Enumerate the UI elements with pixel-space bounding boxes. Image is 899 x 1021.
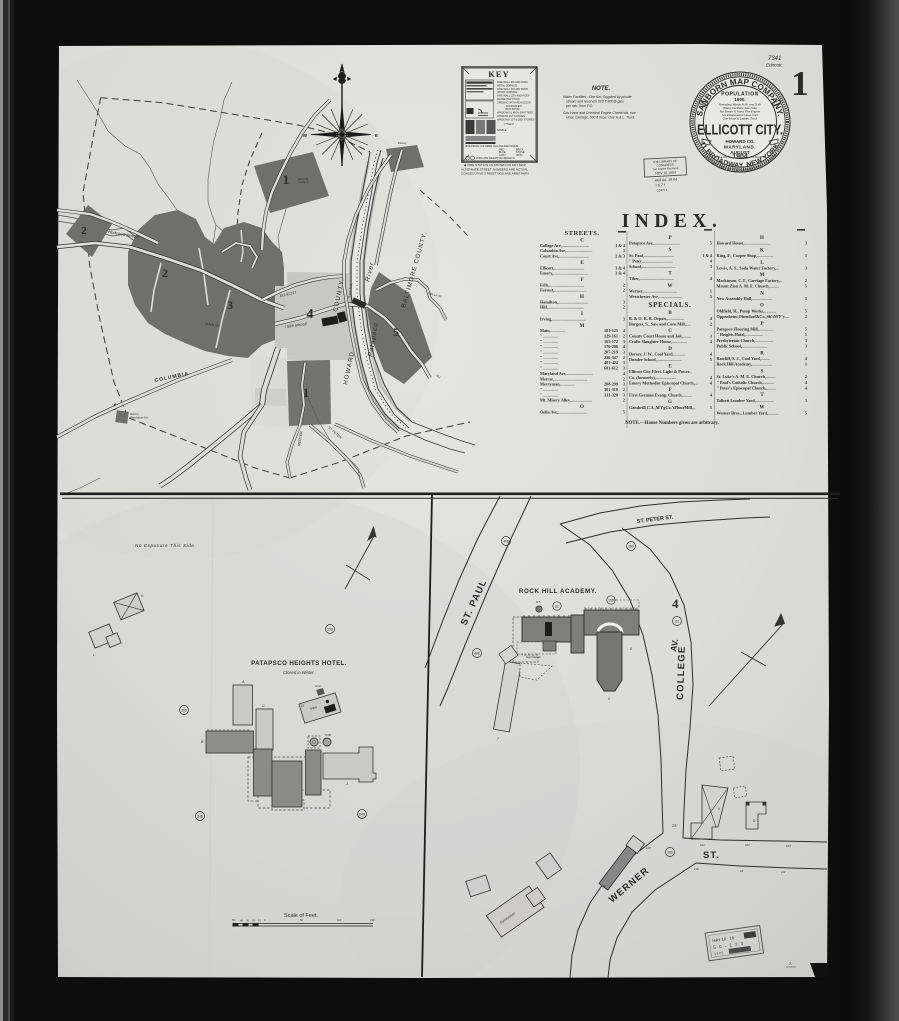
- svg-text:Rock Hill Academy,............: Rock Hill Academy,...................: [717, 362, 772, 367]
- svg-text:6: 6: [608, 697, 610, 701]
- svg-text:Presbyterian Church,..........: Presbyterian Church,.................: [717, 338, 774, 343]
- svg-text:3: 3: [805, 398, 807, 403]
- svg-text:601-612: 601-612: [604, 366, 618, 371]
- svg-text:3: 3: [623, 392, 625, 397]
- svg-text:J.: J.: [345, 782, 349, 786]
- svg-text:3: 3: [623, 248, 625, 253]
- svg-text:Oldfield, H., Pump Works,.....: Oldfield, H., Pump Works,...........: [717, 308, 776, 313]
- svg-text:Ellicott City Elect. Light & P: Ellicott City Elect. Light & Power..: [629, 369, 691, 374]
- svg-text:3: 3: [805, 344, 807, 349]
- svg-text:Oppenheim,Obendorf&Co.,Sh'tM'F: Oppenheim,Obendorf&Co.,Sh'tM'F'y....: [717, 314, 789, 319]
- svg-text:1: 1: [805, 362, 807, 367]
- svg-text:L.: L.: [93, 653, 96, 657]
- svg-text:408: 408: [503, 540, 509, 544]
- svg-text:5: 5: [710, 357, 712, 362]
- svg-text:D.: D.: [301, 704, 305, 708]
- svg-text:Fells,........................: Fells,.................................: [540, 282, 584, 287]
- svg-text:COPY 1.: COPY 1.: [656, 188, 668, 193]
- svg-text:No Exposure This Side.: No Exposure This Side.: [135, 543, 196, 548]
- svg-text:150: 150: [608, 599, 614, 603]
- svg-text:2: 2: [805, 374, 807, 379]
- svg-text:Maryland Ave,.................: Maryland Ave,.........................: [540, 371, 593, 376]
- svg-text:Irving,.......................: Irving,................................: [540, 316, 586, 321]
- svg-text:1904: 1904: [732, 154, 748, 161]
- svg-text:M: M: [580, 324, 585, 329]
- svg-text:3: 3: [805, 241, 807, 246]
- svg-text:" ..............: " ..............: [540, 334, 558, 339]
- svg-text:Howard House,.................: Howard House,.........................: [717, 241, 771, 246]
- svg-text:◆ FIRE STATION AS SHOWN ON KEY: ◆ FIRE STATION AS SHOWN ON KEY MAP.: [464, 163, 526, 167]
- svg-text:176-206: 176-206: [604, 344, 618, 349]
- svg-text:129-161: 129-161: [604, 334, 618, 339]
- svg-text:3: 3: [805, 266, 807, 271]
- svg-text:" ..............: " ..............: [540, 360, 558, 365]
- svg-text:Gas Hand and Chemical Engine C: Gas Hand and Chemical Engine Chemicals, …: [563, 111, 636, 115]
- svg-text:263: 263: [181, 709, 187, 713]
- svg-text:401-424: 401-424: [604, 360, 619, 365]
- svg-text:Mercer,.......................: Mercer,................................: [540, 376, 587, 381]
- svg-text:WINDOWS 1ST & 2ND STORIES: WINDOWS 1ST & 2ND STORIES: [497, 118, 535, 121]
- svg-text:5: 5: [710, 294, 712, 299]
- svg-text:1 & 4: 1 & 4: [702, 253, 713, 258]
- svg-text:128: 128: [646, 846, 651, 850]
- svg-text:Dundee School,................: Dundee School,........................: [629, 357, 682, 362]
- svg-text:Lewis, A. S., Soda Water Facto: Lewis, A. S., Soda Water Factory,...: [717, 266, 780, 271]
- svg-text:King, F., Cooper Shop,........: King, F., Cooper Shop,...............: [717, 253, 773, 258]
- svg-text:226-347: 226-347: [604, 355, 618, 360]
- svg-text:Patapsco Flouring Mill,.......: Patapsco Flouring Mill,..............: [717, 327, 774, 332]
- svg-text:College Ave,..................: College Ave,..........................: [540, 243, 589, 248]
- svg-text:COLLEGE: COLLEGE: [675, 645, 688, 700]
- svg-text:W.T.: W.T.: [536, 601, 541, 604]
- svg-text:Emory,........................: Emory,.................................: [540, 271, 588, 276]
- svg-text:2: 2: [623, 355, 625, 360]
- svg-text:Academy: Academy: [298, 180, 310, 184]
- svg-text:Court Ave,....................: Court Ave,............................: [540, 254, 589, 259]
- svg-text:103: 103: [786, 844, 791, 848]
- svg-text:100: 100: [337, 918, 342, 922]
- svg-text:2: 2: [805, 314, 807, 319]
- svg-text:3: 3: [227, 298, 233, 312]
- svg-text:5: 5: [710, 405, 712, 410]
- svg-text:Columbia Ave,.................: Columbia Ave,.........................: [540, 248, 592, 253]
- svg-text:230: 230: [327, 628, 333, 632]
- svg-text:CONSECUTIVE STREET NOS ARE ARB: CONSECUTIVE STREET NOS ARE ARBITRARY: [461, 172, 529, 176]
- svg-text:1: 1: [710, 288, 712, 293]
- svg-text:Gambrill,C.A.,M'f'gCo.'sFlourM: Gambrill,C.A.,M'f'gCo.'sFlourMill,..: [629, 405, 695, 410]
- svg-text:New Assembly Hall,............: New Assembly Hall,...................: [717, 296, 773, 301]
- svg-text:3 & 4: 3 & 4: [615, 271, 626, 276]
- svg-text:" ..............: " ..............: [540, 344, 558, 349]
- svg-text:Emory Methodist Episcopal Chur: Emory Methodist Episcopal Church,...: [629, 380, 698, 385]
- svg-text:BUILDINGS COLORED YELLOW ARE F: BUILDINGS COLORED YELLOW ARE FRAME: [466, 145, 519, 148]
- svg-text:163-172: 163-172: [604, 339, 618, 344]
- svg-text:IRON: IRON: [516, 154, 522, 157]
- svg-text:B. & O. R. R. Depots,.........: B. & O. R. R. Depots,................: [629, 316, 684, 321]
- svg-text:6: 6: [630, 647, 632, 651]
- svg-text:NOTE.: NOTE.: [592, 86, 611, 92]
- svg-text:" Peter,.....................: " Peter,.............................: [629, 258, 673, 263]
- svg-text:3: 3: [710, 334, 712, 339]
- svg-text:102: 102: [745, 843, 750, 847]
- svg-text:Edncott.: Edncott.: [766, 63, 783, 68]
- svg-text:PATAPSCO HEIGHTS HOTEL.: PATAPSCO HEIGHTS HOTEL.: [251, 660, 347, 667]
- svg-text:Hamilton,.....................: Hamilton,.............................: [540, 299, 588, 304]
- svg-text:Ratcliff, S. J., Coal Yard,...: Ratcliff, S. J., Coal Yard,.........: [717, 356, 771, 361]
- svg-text:Oella Ave,....................: Oella Ave,............................: [540, 409, 587, 414]
- svg-text:School,.......................: School,................................: [629, 264, 675, 269]
- svg-text:240: 240: [359, 813, 365, 817]
- svg-text:ST.: ST.: [703, 850, 720, 861]
- svg-text:2 & 3: 2 & 3: [615, 254, 625, 259]
- svg-text:5: 5: [805, 308, 807, 313]
- svg-text:3: 3: [623, 316, 625, 321]
- svg-text:5: 5: [805, 253, 807, 258]
- svg-text:Mt. Misery Alley,.............: Mt. Misery Alley,....................: [540, 398, 592, 403]
- svg-text:Plantation Ho.: Plantation Ho.: [130, 416, 149, 420]
- svg-text:5: 5: [805, 327, 807, 332]
- svg-text:82: 82: [555, 605, 559, 609]
- svg-text:INDEX.: INDEX.: [622, 211, 723, 232]
- svg-text:2: 2: [623, 282, 625, 287]
- svg-text:1800.: 1800.: [734, 97, 746, 102]
- svg-text:SPECIALS.: SPECIALS.: [648, 301, 691, 309]
- svg-text:3: 3: [623, 382, 625, 387]
- svg-text:E: E: [375, 133, 378, 138]
- svg-text:HOWARD CO.: HOWARD CO.: [725, 139, 754, 144]
- svg-text:1: 1: [791, 64, 809, 103]
- svg-text:" ..............: " ..............: [540, 366, 558, 371]
- svg-text:" Heights Hotel,..........: " Heights Hotel,.................: [717, 332, 764, 337]
- svg-text:· ITT&417 ·: · ITT&417 ·: [503, 123, 516, 126]
- svg-text:2: 2: [623, 305, 625, 310]
- svg-text:2: 2: [623, 398, 625, 403]
- svg-text:K.: K.: [141, 594, 144, 598]
- svg-text:10: 10: [740, 869, 744, 873]
- svg-text:Hose Carriage, 500 ft hose: On: Hose Carriage, 500 ft hose: One H.& L. T…: [566, 116, 635, 120]
- svg-text:STREETS.: STREETS.: [565, 230, 600, 237]
- svg-text:1: 1: [805, 332, 807, 337]
- svg-text:288-299: 288-299: [604, 382, 618, 387]
- svg-text:63: 63: [675, 620, 679, 624]
- svg-text:7341: 7341: [768, 56, 781, 62]
- svg-text:2: 2: [81, 225, 87, 237]
- svg-text:2: 2: [623, 387, 625, 392]
- svg-text:ROCK HILL ACADEMY.: ROCK HILL ACADEMY.: [519, 588, 597, 595]
- svg-text:Talbott Lumber Yard,..........: Talbott Lumber Yard,.................: [717, 398, 774, 403]
- svg-text:τ 6 7 f: τ 6 7 f: [655, 183, 666, 188]
- svg-text:per min. from P.O.: per min. from P.O.: [565, 104, 593, 108]
- svg-text:" ..............: " ..............: [540, 387, 558, 392]
- svg-text:Tiber,........................: Tiber,.................................: [629, 276, 674, 281]
- svg-text:3: 3: [805, 338, 807, 343]
- svg-text:101-125: 101-125: [604, 328, 618, 333]
- svg-text:Hill,.........................: Hill,..................................: [540, 305, 583, 310]
- svg-text:2: 2: [162, 266, 168, 280]
- svg-text:5: 5: [710, 241, 712, 246]
- svg-text:One Hook & Ladder Truck: One Hook & Ladder Truck: [723, 117, 758, 121]
- svg-text:Mackinson, C.T., Carriage Fact: Mackinson, C.T., Carriage Factory,..: [717, 278, 783, 283]
- svg-text:Mount Zion A. M. E. Church,...: Mount Zion A. M. E. Church,.........: [717, 284, 780, 289]
- svg-text:1: 1: [283, 172, 290, 187]
- svg-text:Dorsey, J. W., Coal Yard,.....: Dorsey, J. W., Coal Yard,...........: [629, 351, 685, 356]
- svg-text:2: 2: [623, 376, 625, 381]
- svg-text:3: 3: [623, 350, 625, 355]
- svg-text:4: 4: [307, 307, 314, 322]
- svg-text:Crafts Slaughter House,.......: Crafts Slaughter House,..............: [629, 339, 687, 344]
- svg-text:Merryman,..............: Merryman,..............: [540, 382, 575, 387]
- svg-text:Burgess, S., Saw and Corn Mill: Burgess, S., Saw and Corn Mill,.....: [629, 321, 691, 326]
- svg-text:Public School,................: Public School,........................: [717, 344, 768, 349]
- svg-text:246: 246: [197, 815, 203, 819]
- svg-text:TANK: TANK: [325, 734, 332, 737]
- svg-text:101: 101: [700, 843, 705, 847]
- svg-text:3: 3: [623, 299, 625, 304]
- svg-text:" Paul's Catholic Church,.....: " Paul's Catholic Church,...........: [717, 380, 775, 385]
- svg-text:" Peter's Episcopal Church,...: " Peter's Episcopal Church,.........: [717, 386, 776, 391]
- svg-text:301-310: 301-310: [604, 387, 618, 392]
- svg-text:Werner,.......................: Werner,................................: [629, 288, 677, 293]
- svg-text:" ..............: " ..............: [540, 355, 558, 360]
- svg-text:STABLE: STABLE: [497, 129, 507, 132]
- svg-text:A.: A.: [241, 680, 245, 684]
- svg-text:2: 2: [805, 278, 807, 283]
- svg-text:Gr.ho.: Gr.ho.: [315, 685, 322, 688]
- svg-text:5: 5: [393, 325, 399, 339]
- svg-text:5: 5: [805, 410, 807, 415]
- svg-text:stream and reservoir 600 ft 80: stream and reservoir 600 ft 800@ gals: [566, 100, 624, 104]
- svg-text:3: 3: [623, 360, 625, 365]
- svg-text:3: 3: [623, 366, 625, 371]
- svg-text:NOTE.—House Numbers given are: NOTE.—House Numbers given are arbitrary.: [625, 421, 719, 426]
- svg-text:Closed in Winter.: Closed in Winter.: [283, 670, 315, 675]
- svg-text:3 & 4: 3 & 4: [615, 265, 626, 270]
- svg-text:311-320: 311-320: [604, 392, 618, 397]
- svg-text:h: h: [718, 807, 720, 811]
- svg-text:INDICATE RELATIVE HEIGHTS: INDICATE RELATIVE HEIGHTS: [476, 156, 515, 160]
- svg-text:Westchester Ave,..............: Westchester Ave,......................: [629, 294, 682, 299]
- svg-text:SCALE 50FT.: SCALE 50FT.: [714, 155, 730, 159]
- svg-text:Dorsey: Dorsey: [398, 141, 407, 145]
- svg-text:7: 7: [497, 737, 499, 741]
- svg-text:ELLICOTT CITY.: ELLICOTT CITY.: [697, 123, 783, 139]
- svg-text:126: 126: [601, 884, 606, 888]
- svg-text:Gymnasium: Gymnasium: [526, 655, 542, 659]
- svg-text:KEY: KEY: [488, 69, 509, 79]
- svg-text:468: 468: [474, 652, 480, 656]
- svg-text:St. Paul,.....................: St. Paul,.............................: [629, 253, 674, 258]
- svg-text:Ellicott,.....................: Ellicott,.............................: [540, 265, 584, 270]
- svg-text:Co. (formerly),...............: Co. (formerly),...................: [629, 375, 676, 380]
- svg-text:Werner Bros., Lumber Yard,....: Werner Bros., Lumber Yard,..........: [717, 410, 779, 415]
- svg-text:5: 5: [805, 296, 807, 301]
- svg-text:3: 3: [623, 339, 625, 344]
- svg-text:5: 5: [805, 284, 807, 289]
- svg-text:180: 180: [628, 545, 634, 549]
- svg-text:2: 2: [710, 321, 712, 326]
- svg-text:TO AN INCH: TO AN INCH: [751, 155, 766, 159]
- svg-text:160: 160: [667, 851, 673, 855]
- svg-text:4: 4: [672, 596, 679, 611]
- svg-text:MARYLAND.: MARYLAND.: [724, 145, 756, 150]
- svg-text:25': 25': [671, 823, 677, 828]
- svg-text:" ..............: " ..............: [540, 392, 558, 397]
- svg-text:Main,..............: Main,..............: [540, 328, 565, 333]
- svg-text:2: 2: [623, 334, 625, 339]
- svg-text:C.: C.: [262, 704, 266, 708]
- svg-text:3: 3: [710, 264, 712, 269]
- svg-text:First German Evang. Church,...: First German Evang. Church,.........: [629, 393, 692, 398]
- svg-text:7.: 7.: [789, 961, 792, 966]
- svg-text:112: 112: [781, 870, 786, 874]
- svg-text:Patapsco Ave,.................: Patapsco Ave,.........................: [629, 241, 680, 246]
- svg-text:" ..............: " ..............: [540, 350, 558, 355]
- svg-text:207-219: 207-219: [604, 350, 618, 355]
- svg-text:2: 2: [623, 288, 625, 293]
- svg-text:110: 110: [694, 867, 699, 871]
- svg-text:" ..............: " ..............: [540, 339, 558, 344]
- svg-text:1 & 4: 1 & 4: [615, 243, 626, 248]
- svg-text:St. Luke's A. M. E. Church,...: St. Luke's A. M. E. Church,.........: [717, 374, 776, 379]
- svg-text:150: 150: [370, 918, 375, 922]
- svg-text:Forrest,......................: Forrest,...............................: [540, 288, 587, 293]
- svg-text:5: 5: [623, 409, 625, 414]
- svg-text:Water Facilities : One 6in. Su: Water Facilities : One 6in. Supplied by …: [563, 95, 632, 99]
- svg-text:County Court House and Jail,..: County Court House and Jail,........: [629, 334, 691, 339]
